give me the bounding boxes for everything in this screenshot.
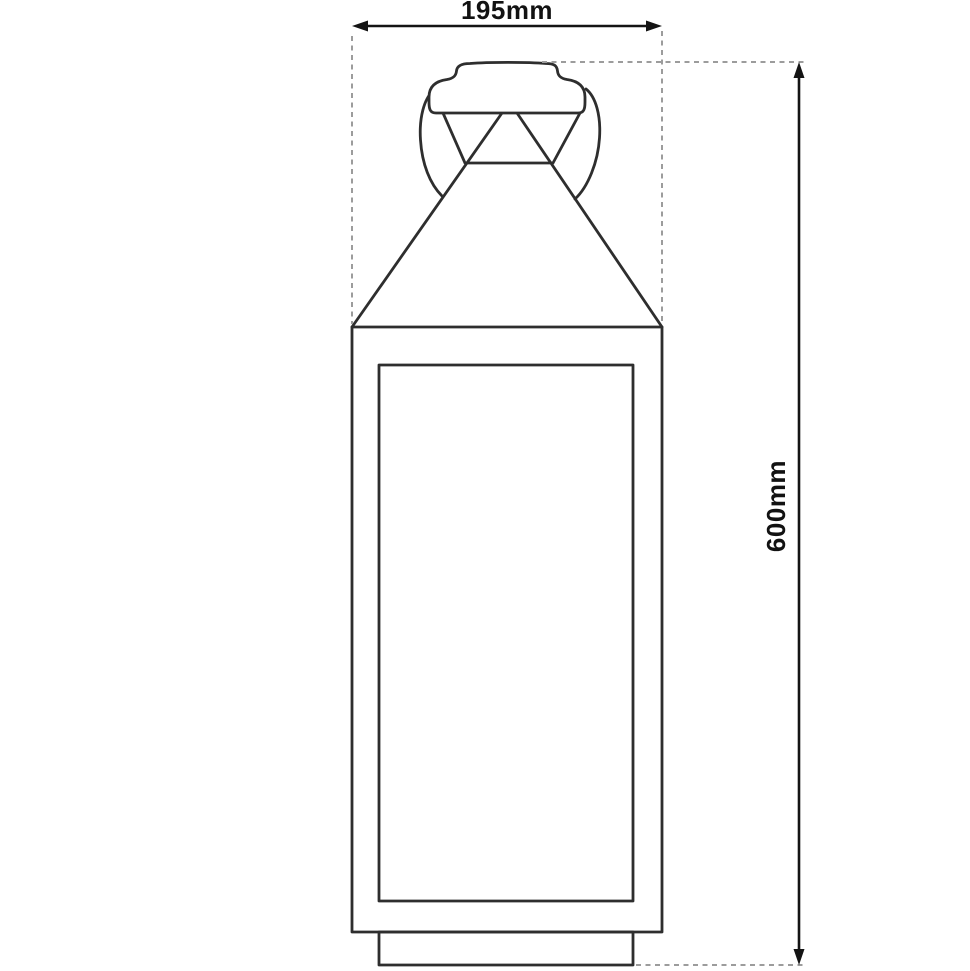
roof-collar — [443, 113, 580, 163]
width-dimension-label: 195mm — [461, 0, 553, 25]
width-arrow-right — [646, 21, 662, 32]
height-dimension: 600mm — [761, 62, 805, 965]
height-dimension-label: 600mm — [761, 460, 791, 552]
diagram-canvas: 195mm 600mm — [0, 0, 970, 971]
lantern-drawing — [352, 62, 662, 965]
roof-left-edge — [352, 113, 502, 327]
width-dimension: 195mm — [352, 0, 662, 32]
roof-right-edge — [517, 113, 662, 327]
finial-cap — [429, 62, 585, 113]
lantern-dimension-diagram: 195mm 600mm — [0, 0, 970, 971]
height-arrow-top — [794, 62, 805, 78]
height-arrow-bottom — [794, 949, 805, 965]
glass-panel-frame — [379, 365, 633, 901]
body-outer-frame — [352, 327, 662, 932]
width-arrow-left — [352, 21, 368, 32]
base-plinth — [379, 932, 633, 965]
